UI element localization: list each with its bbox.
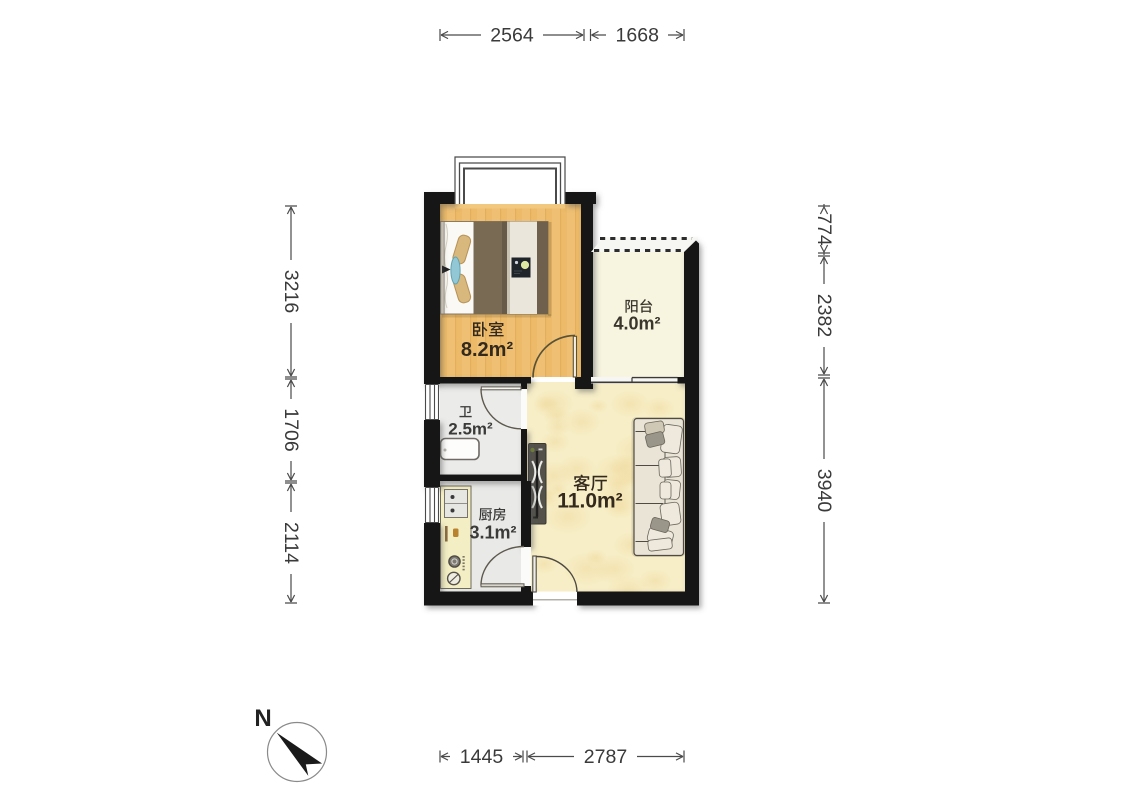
svg-text:N: N [254,705,271,732]
svg-text:3940: 3940 [813,469,835,513]
svg-text:2787: 2787 [584,746,627,768]
svg-text:11.0m²: 11.0m² [557,490,622,513]
svg-text:8.2m²: 8.2m² [461,339,514,361]
svg-text:2564: 2564 [490,25,534,47]
svg-text:774: 774 [813,213,835,246]
svg-text:4.0m²: 4.0m² [613,314,660,334]
svg-text:3216: 3216 [280,270,302,313]
svg-text:1445: 1445 [460,746,504,768]
svg-text:1668: 1668 [616,25,659,47]
svg-text:2114: 2114 [280,522,302,564]
svg-text:3.1m²: 3.1m² [469,523,516,543]
svg-text:2.5m²: 2.5m² [448,420,493,439]
svg-text:1706: 1706 [280,408,302,451]
svg-text:2382: 2382 [813,294,835,337]
